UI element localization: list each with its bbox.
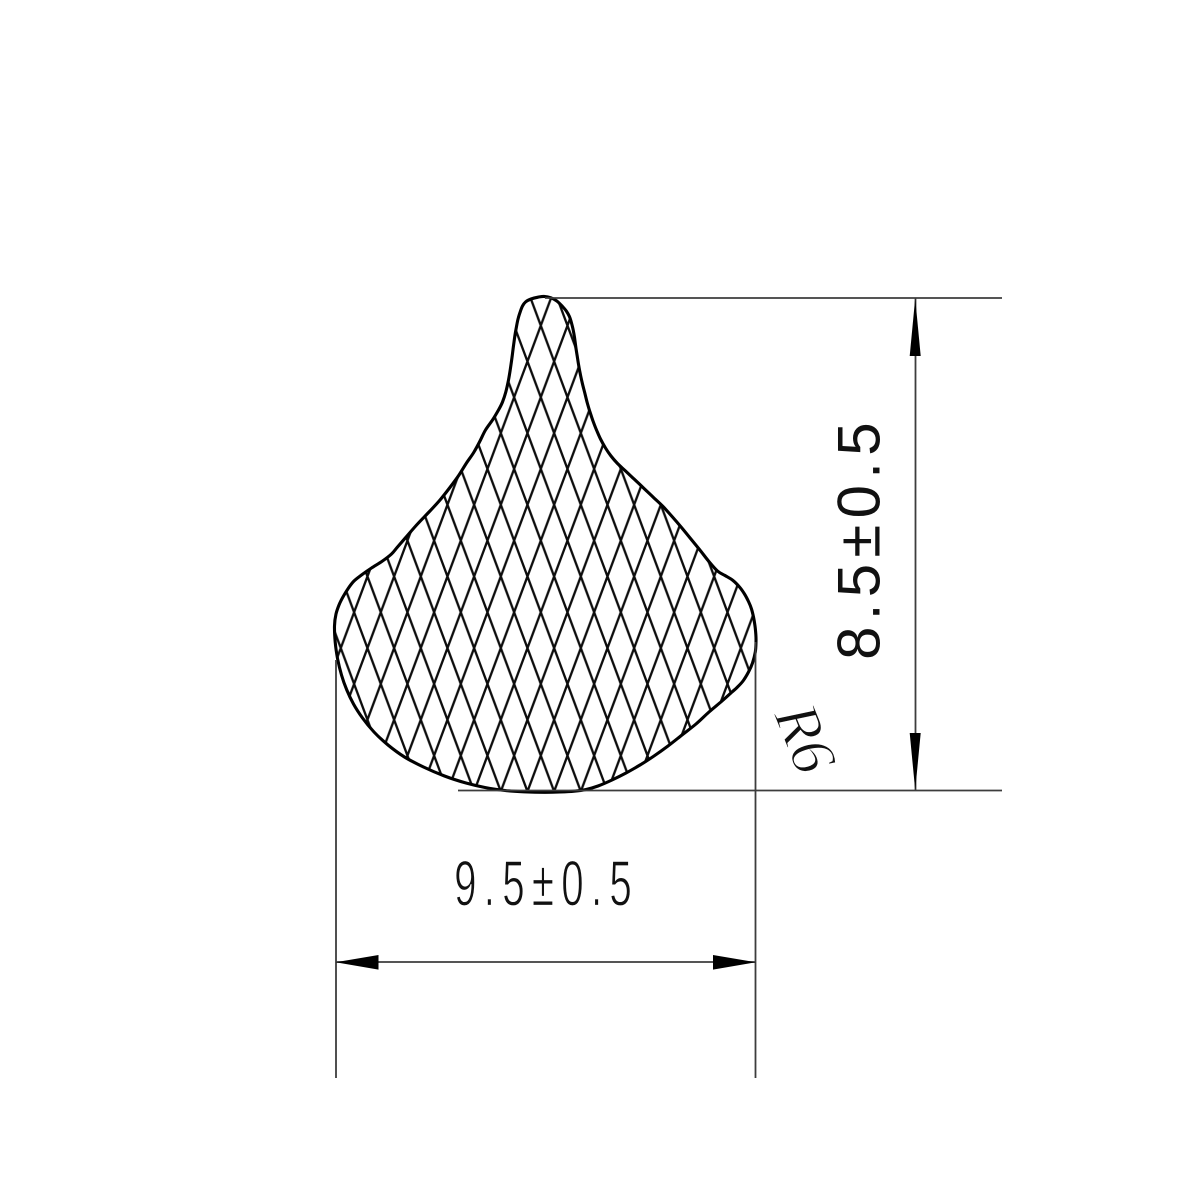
svg-text:9.5±0.5: 9.5±0.5 [454, 849, 639, 920]
svg-text:8.5±0.5: 8.5±0.5 [826, 416, 893, 660]
